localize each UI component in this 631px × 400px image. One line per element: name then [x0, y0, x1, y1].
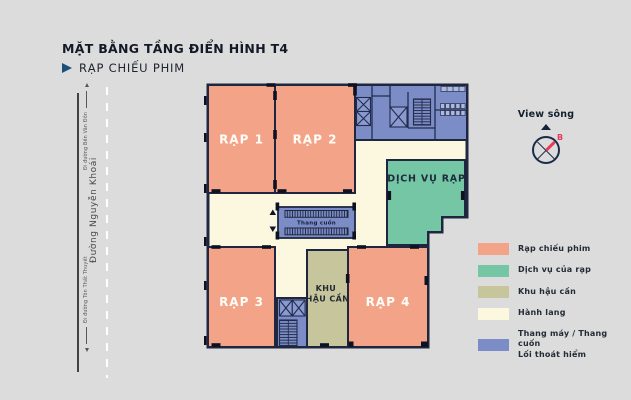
room-label-rap1: RẠP 1 — [219, 133, 264, 147]
floor-plan: Thang cuốn — [204, 81, 472, 351]
page-subtitle: RẠP CHIẾU PHIM — [79, 61, 185, 75]
triangle-bullet-icon — [62, 63, 72, 73]
circulation-core-bottom — [277, 298, 307, 347]
street-name-label: Đường Nguyễn Khoái — [89, 157, 99, 263]
room-label-rap2: RẠP 2 — [293, 133, 338, 147]
road-center-dashed-line — [106, 87, 108, 378]
legend-item-services: Dịch vụ của rạp — [478, 265, 631, 277]
street-direction-top: Đi đường Bến Vân Đồn — [84, 83, 89, 170]
circulation-core-top — [355, 85, 467, 140]
floor-plan-page: { "header": { "title": "MẶT BẰNG TẦNG ĐI… — [0, 0, 631, 400]
legend-item-cinema: Rạp chiếu phim — [478, 243, 631, 255]
street-direction-bottom: Đi đường Tôn Thất Thuyết — [84, 256, 89, 352]
elevator-shafts-icon — [280, 300, 306, 316]
subtitle-row: RẠP CHIẾU PHIM — [62, 61, 185, 75]
legend-label: Thang máy / Thang cuốn Lối thoát hiểm — [518, 329, 631, 360]
legend-item-circulation: Thang máy / Thang cuốn Lối thoát hiểm — [478, 329, 631, 360]
arrow-line — [86, 327, 87, 344]
escalator-lane-icon — [285, 211, 348, 218]
legend: Rạp chiếu phim Dịch vụ của rạp Khu hậu c… — [478, 243, 631, 370]
compass-group: View sông B — [503, 109, 589, 164]
legend-label: Rạp chiếu phim — [518, 244, 590, 254]
escalator-lane-icon — [285, 228, 348, 235]
legend-label-line1: Thang máy / Thang cuốn — [518, 329, 631, 350]
arrow-down-icon — [85, 348, 89, 352]
legend-item-hallway: Hành lang — [478, 308, 631, 320]
legend-swatch-logistics — [478, 286, 509, 298]
direction-bottom-label: Đi đường Tôn Thất Thuyết — [84, 256, 89, 323]
legend-swatch-hallway — [478, 308, 509, 320]
staircase-icon — [414, 99, 431, 125]
floor-plan-svg: Thang cuốn — [204, 81, 472, 351]
legend-swatch-services — [478, 265, 509, 277]
legend-label: Dịch vụ của rạp — [518, 265, 591, 275]
view-direction-triangle-icon — [541, 124, 551, 130]
compass-icon — [532, 136, 560, 164]
legend-label: Khu hậu cần — [518, 287, 576, 297]
direction-top-label: Đi đường Bến Vân Đồn — [84, 112, 89, 170]
legend-item-logistics: Khu hậu cần — [478, 286, 631, 298]
north-needle-icon — [545, 141, 555, 151]
room-label-rap4: RẠP 4 — [366, 295, 411, 309]
view-song-label: View sông — [503, 109, 589, 120]
staircase-icon — [280, 320, 298, 346]
page-title: MẶT BẰNG TẦNG ĐIỂN HÌNH T4 — [62, 41, 288, 56]
room-label-dich-vu: DỊCH VỤ RẠP — [387, 174, 465, 185]
legend-label-line2: Lối thoát hiểm — [518, 350, 631, 360]
north-label: B — [557, 133, 563, 142]
legend-swatch-cinema — [478, 243, 509, 255]
arrow-line — [86, 91, 87, 108]
escalator-label: Thang cuốn — [297, 220, 336, 227]
room-label-rap3: RẠP 3 — [219, 295, 264, 309]
arrow-up-icon — [85, 83, 89, 87]
road-edge-line — [77, 93, 79, 372]
legend-label: Hành lang — [518, 308, 566, 318]
legend-swatch-circulation — [478, 339, 509, 351]
escalator-block: Thang cuốn — [270, 207, 356, 238]
